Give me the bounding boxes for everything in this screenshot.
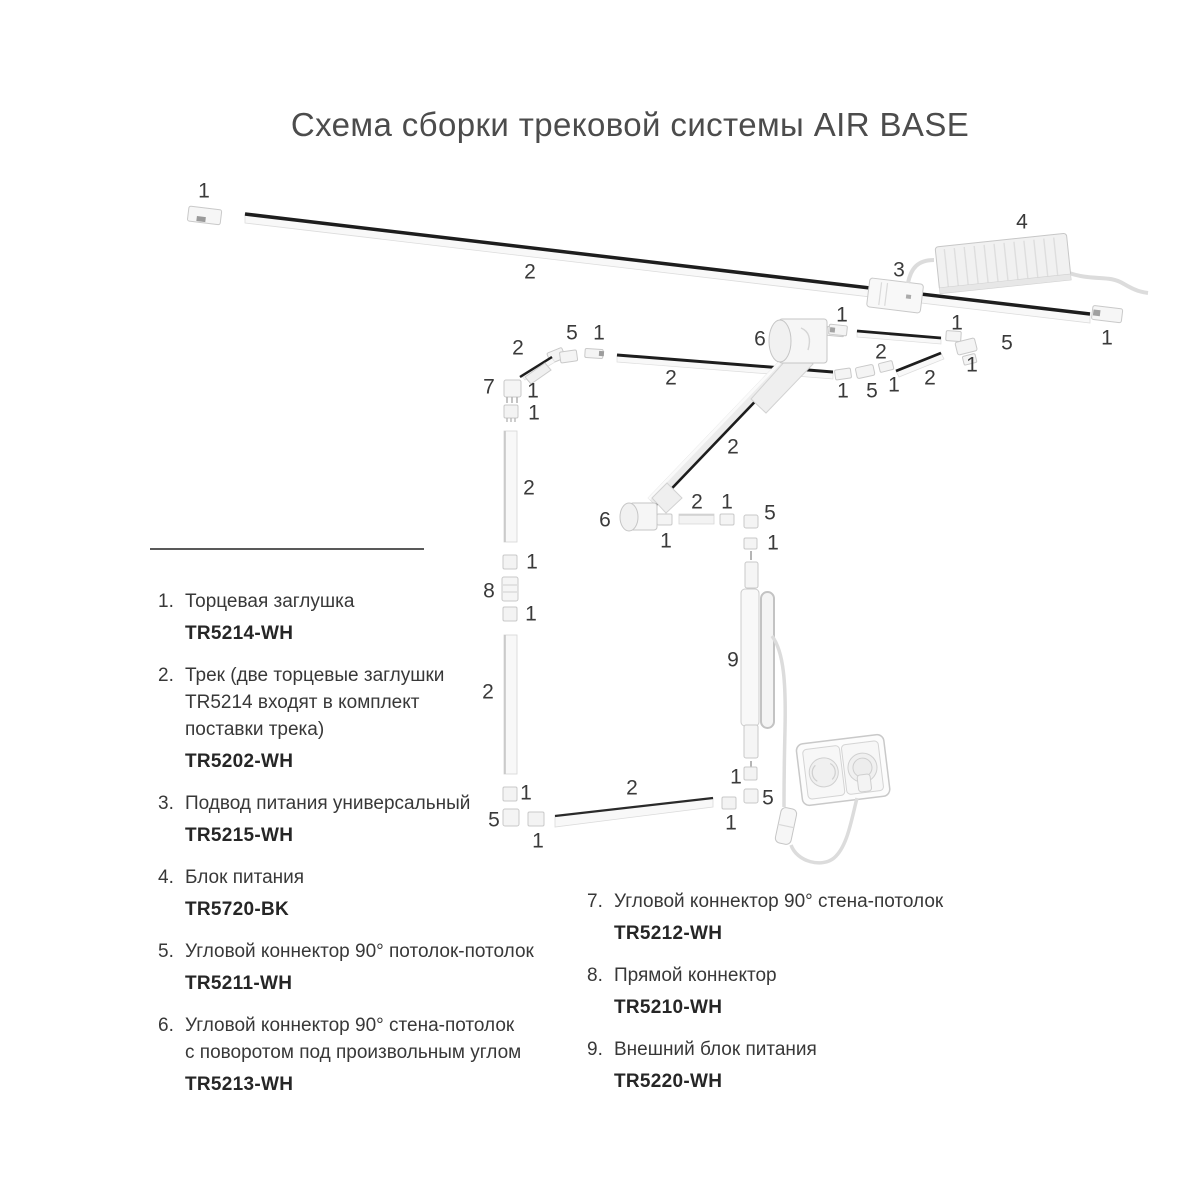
legend-item-number: 6.: [158, 1012, 185, 1098]
legend-right-column: 7.Угловой коннектор 90° стена-потолокTR5…: [587, 888, 943, 1110]
legend-item-code: TR5214-WH: [185, 620, 354, 647]
legend-item-text: Угловой коннектор 90° стена-потолок: [614, 888, 943, 915]
track-short-upper-right: [857, 331, 941, 344]
legend-item-number: 3.: [158, 790, 185, 849]
legend-item: 1.Торцевая заглушкаTR5214-WH: [158, 588, 534, 647]
legend-item-code: TR5212-WH: [614, 920, 943, 947]
power-supply-box: [935, 233, 1071, 294]
legend-item: 5.Угловой коннектор 90° потолок-потолокT…: [158, 938, 534, 997]
corner-connector-right: [946, 331, 978, 366]
external-power-device: [741, 551, 774, 770]
track-bottom: [555, 798, 713, 827]
legend-item-number: 4.: [158, 864, 185, 923]
swivel-connector-lower: [620, 483, 682, 531]
driver-wire-right: [1066, 272, 1148, 293]
lower-chain: [657, 514, 758, 549]
legend-item-text: Угловой коннектор 90° потолок-потолок: [185, 938, 534, 965]
legend-item-code: TR5211-WH: [185, 970, 534, 997]
legend-item: 7.Угловой коннектор 90° стена-потолокTR5…: [587, 888, 943, 947]
end-cap-right-of-swivel: [829, 324, 848, 336]
legend-item-text: Подвод питания универсальный: [185, 790, 470, 817]
legend-item-number: 8.: [587, 962, 614, 1021]
track-short-lower-right: [896, 353, 944, 377]
driver-wire-left: [908, 260, 934, 283]
power-cord-lower: [791, 798, 857, 863]
cord-switch: [774, 807, 797, 846]
legend-item-number: 2.: [158, 662, 185, 775]
page: { "title": "Схема сборки трековой систем…: [0, 0, 1200, 1200]
power-feed-connector: [866, 278, 923, 313]
legend-item-number: 5.: [158, 938, 185, 997]
legend-item: 2.Трек (две торцевые заглушки TR5214 вхо…: [158, 662, 534, 775]
legend-item-text: Угловой коннектор 90° стена-потолок с по…: [185, 1012, 521, 1066]
corner-connector-bottom-right: [722, 767, 758, 809]
legend-item-text: Блок питания: [185, 864, 304, 891]
end-cap-below-7: [504, 405, 518, 422]
legend-item-text: Трек (две торцевые заглушки TR5214 входя…: [185, 662, 444, 743]
legend-item-number: 7.: [587, 888, 614, 947]
wall-ceiling-connector-7: [504, 363, 551, 403]
legend-item-code: TR5215-WH: [185, 822, 470, 849]
corner-connector-left: [547, 347, 604, 363]
legend-item-text: Внешний блок питания: [614, 1036, 817, 1063]
legend-left-column: 1.Торцевая заглушкаTR5214-WH2.Трек (две …: [158, 588, 534, 1113]
legend-item-code: TR5213-WH: [185, 1071, 521, 1098]
legend-item-code: TR5220-WH: [614, 1068, 817, 1095]
legend-item: 4.Блок питанияTR5720-BK: [158, 864, 534, 923]
legend-item: 6.Угловой коннектор 90° стена-потолок с …: [158, 1012, 534, 1098]
end-cap-top-left: [187, 206, 222, 225]
legend-item-code: TR5720-BK: [185, 896, 304, 923]
end-cap-top-right: [1091, 305, 1122, 323]
legend-item: 8.Прямой коннекторTR5210-WH: [587, 962, 943, 1021]
legend-item-text: Торцевая заглушка: [185, 588, 354, 615]
wall-socket: [796, 734, 891, 806]
legend-item-code: TR5210-WH: [614, 994, 777, 1021]
legend-item-number: 1.: [158, 588, 185, 647]
legend-item-code: TR5202-WH: [185, 748, 444, 775]
legend-item: 9.Внешний блок питанияTR5220-WH: [587, 1036, 943, 1095]
legend-item: 3.Подвод питания универсальныйTR5215-WH: [158, 790, 534, 849]
legend-item-number: 9.: [587, 1036, 614, 1095]
legend-item-text: Прямой коннектор: [614, 962, 777, 989]
